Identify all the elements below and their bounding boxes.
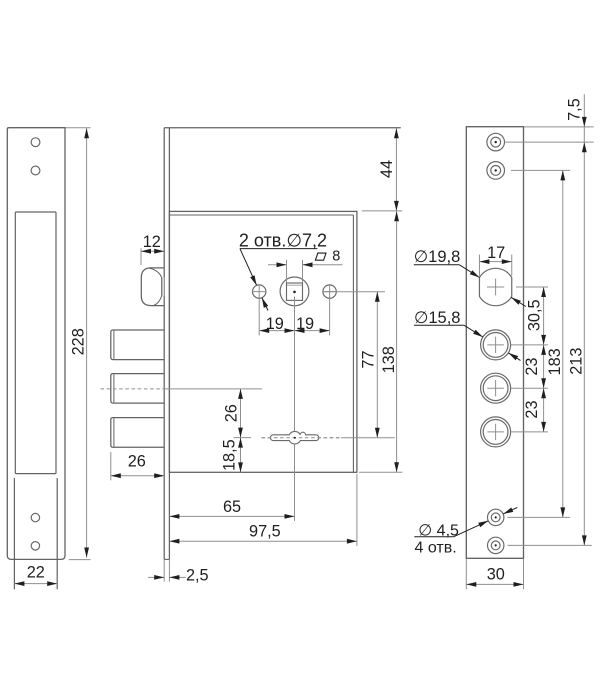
svg-text:8: 8	[332, 249, 340, 265]
svg-text:213: 213	[568, 348, 586, 375]
svg-text:12: 12	[143, 233, 161, 251]
svg-text:18,5: 18,5	[221, 439, 239, 471]
svg-text:77: 77	[359, 350, 377, 368]
svg-text:17: 17	[487, 244, 505, 262]
svg-text:∅15,8: ∅15,8	[414, 309, 461, 327]
svg-text:23: 23	[523, 400, 541, 418]
svg-text:26: 26	[223, 404, 241, 422]
svg-text:2,5: 2,5	[186, 567, 209, 585]
svg-text:∅19,8: ∅19,8	[414, 248, 461, 266]
svg-text:30: 30	[487, 566, 505, 584]
svg-text:23: 23	[523, 358, 541, 376]
svg-text:97,5: 97,5	[249, 523, 281, 541]
svg-text:4 отв.: 4 отв.	[415, 539, 457, 556]
svg-text:19: 19	[296, 315, 314, 333]
svg-text:22: 22	[27, 563, 45, 581]
svg-text:26: 26	[128, 452, 146, 470]
svg-text:44: 44	[378, 160, 396, 178]
svg-text:19: 19	[266, 315, 284, 333]
svg-text:2 отв.∅7,2: 2 отв.∅7,2	[239, 230, 327, 250]
svg-text:65: 65	[223, 498, 241, 516]
svg-text:228: 228	[69, 328, 87, 355]
svg-text:30,5: 30,5	[526, 299, 544, 331]
svg-text:7,5: 7,5	[565, 98, 583, 121]
svg-text:183: 183	[546, 348, 564, 375]
svg-text:138: 138	[380, 346, 398, 373]
